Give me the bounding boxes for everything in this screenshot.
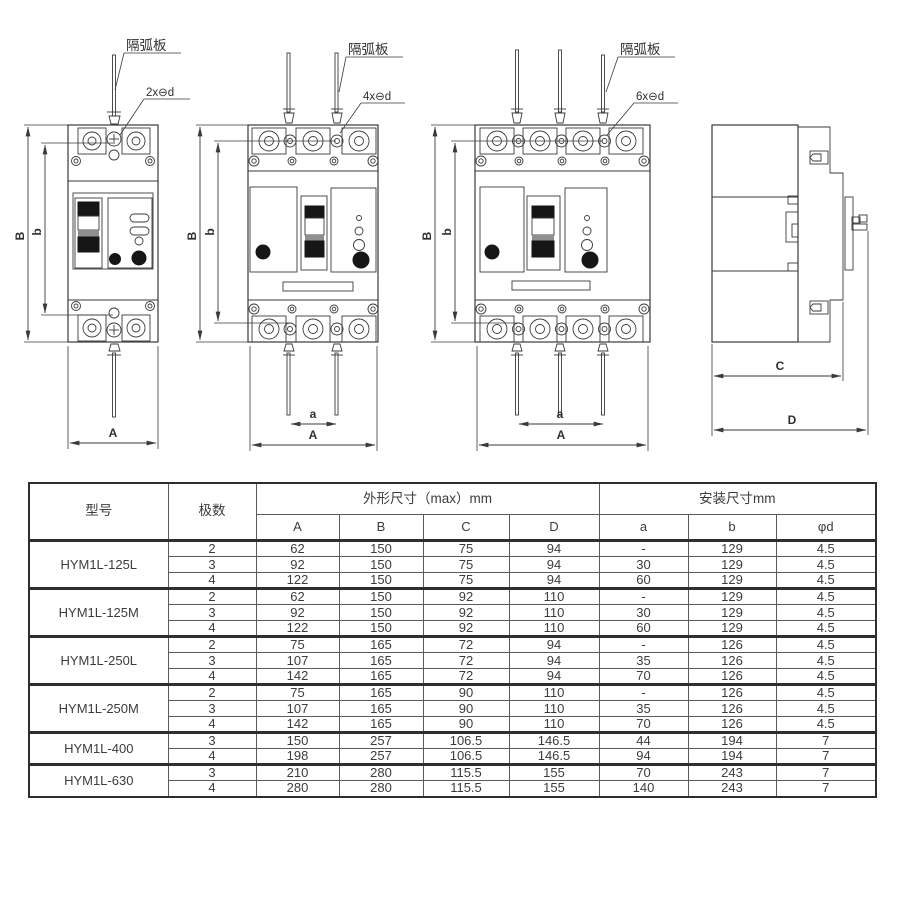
breaker-dimension-drawings: 隔弧板 2x⊖d B b A xyxy=(0,0,900,478)
model-cell: HYM1L-250L xyxy=(29,637,168,685)
model-cell: HYM1L-400 xyxy=(29,733,168,765)
cell: 194 xyxy=(688,749,776,765)
subheader-b: b xyxy=(688,515,776,541)
dimension-A: A xyxy=(477,346,648,451)
cell: 94 xyxy=(509,557,599,573)
cell: 243 xyxy=(688,765,776,781)
header-mount-dims: 安装尺寸mm xyxy=(599,483,876,515)
table-row: HYM1L-250L 2 75 165 72 94 - 126 4.5 xyxy=(29,637,876,653)
cell: 70 xyxy=(599,765,688,781)
cell: 2 xyxy=(168,685,256,701)
cell: 70 xyxy=(599,669,688,685)
toggle-handle xyxy=(532,206,554,257)
cell: 129 xyxy=(688,621,776,637)
terminal-lugs-top xyxy=(249,128,378,166)
datasheet-page: 隔弧板 2x⊖d B b A xyxy=(0,0,900,898)
cell: 165 xyxy=(339,637,423,653)
padlock-button xyxy=(485,245,499,259)
cell: 90 xyxy=(423,717,509,733)
subheader-A: A xyxy=(256,515,339,541)
cell: 4.5 xyxy=(776,573,876,589)
dimension-A: A xyxy=(68,346,158,449)
subheader-C: C xyxy=(423,515,509,541)
arc-plate-rods-bottom xyxy=(511,344,609,415)
mounting-plate xyxy=(845,197,853,270)
cell: 115.5 xyxy=(423,765,509,781)
cell: 4.5 xyxy=(776,653,876,669)
subheader-phi-d: φd xyxy=(776,515,876,541)
arc-plate-callout: 隔弧板 xyxy=(115,38,181,90)
cell: - xyxy=(599,637,688,653)
breaker-cover xyxy=(480,187,607,290)
cell: 35 xyxy=(599,653,688,669)
cell: 115.5 xyxy=(423,781,509,797)
terminal-lugs-top xyxy=(476,128,649,166)
cell: 94 xyxy=(509,653,599,669)
toggle-handle xyxy=(78,202,99,252)
dimension-b: b xyxy=(440,141,603,323)
cell: 243 xyxy=(688,781,776,797)
cell: 107 xyxy=(256,701,339,717)
dim-a-label: a xyxy=(557,407,564,421)
cell: 75 xyxy=(423,541,509,557)
table-row: HYM1L-125L 2 62 150 75 94 - 129 4.5 xyxy=(29,541,876,557)
trip-button xyxy=(132,251,146,265)
arc-plate-rods-top xyxy=(283,53,343,123)
header-model: 型号 xyxy=(29,483,168,541)
cell: - xyxy=(599,541,688,557)
nameplate-slot xyxy=(283,282,353,291)
cell: 7 xyxy=(776,733,876,749)
cell: 280 xyxy=(339,781,423,797)
cell: 4 xyxy=(168,749,256,765)
cell: 129 xyxy=(688,541,776,557)
dim-B-label: B xyxy=(185,231,199,240)
cell: 92 xyxy=(423,621,509,637)
cell: 146.5 xyxy=(509,733,599,749)
cell: 44 xyxy=(599,733,688,749)
cell: 4.5 xyxy=(776,621,876,637)
cell: 165 xyxy=(339,653,423,669)
cell: 142 xyxy=(256,717,339,733)
cell: 92 xyxy=(256,557,339,573)
cell: 92 xyxy=(423,605,509,621)
cell: 146.5 xyxy=(509,749,599,765)
cell: 150 xyxy=(339,573,423,589)
cell: 4 xyxy=(168,669,256,685)
test-button xyxy=(110,254,121,265)
cell: 4 xyxy=(168,717,256,733)
model-cell: HYM1L-125L xyxy=(29,541,168,589)
cell: 126 xyxy=(688,685,776,701)
cell: 75 xyxy=(423,573,509,589)
dim-A-label: A xyxy=(309,428,318,442)
cell: 126 xyxy=(688,637,776,653)
cell: 94 xyxy=(509,637,599,653)
arc-plate-callout: 隔弧板 xyxy=(339,42,403,92)
dim-a-label: a xyxy=(310,407,317,421)
trip-button xyxy=(582,252,598,268)
cell: 150 xyxy=(339,541,423,557)
dimension-b: b xyxy=(203,141,336,323)
cell: 198 xyxy=(256,749,339,765)
mounting-holes-callout: 4x⊖d xyxy=(340,91,405,133)
dim-D-label: D xyxy=(788,413,797,427)
cell: 4.5 xyxy=(776,685,876,701)
cell: 7 xyxy=(776,765,876,781)
cell: 110 xyxy=(509,717,599,733)
cell: 3 xyxy=(168,557,256,573)
cell: 7 xyxy=(776,749,876,765)
dim-b-label: b xyxy=(30,228,44,235)
dim-b-label: b xyxy=(440,228,454,235)
cell: - xyxy=(599,589,688,605)
cell: 3 xyxy=(168,765,256,781)
arc-plate-rods-top xyxy=(511,50,609,123)
dim-B-label: B xyxy=(13,231,27,240)
cell: 110 xyxy=(509,685,599,701)
arc-plate-rods-bottom xyxy=(283,344,343,415)
cell: 35 xyxy=(599,701,688,717)
cell: 129 xyxy=(688,557,776,573)
cell: 165 xyxy=(339,717,423,733)
holes-label: 4x⊖d xyxy=(363,91,391,103)
cell: 4.5 xyxy=(776,717,876,733)
model-cell: HYM1L-630 xyxy=(29,765,168,797)
cell: 4 xyxy=(168,573,256,589)
arc-plate-rod-top xyxy=(107,55,121,124)
cell: 122 xyxy=(256,573,339,589)
cell: 92 xyxy=(256,605,339,621)
cell: 129 xyxy=(688,605,776,621)
cell: 126 xyxy=(688,717,776,733)
cell: 72 xyxy=(423,669,509,685)
dim-b-label: b xyxy=(203,228,217,235)
cell: 72 xyxy=(423,653,509,669)
table-row: HYM1L-630 3 210 280 115.5 155 70 243 7 xyxy=(29,765,876,781)
dimension-C: C xyxy=(712,302,843,436)
rear-housing-outline xyxy=(798,127,843,342)
arc-plate-rod-bottom xyxy=(107,344,121,417)
cell: 4.5 xyxy=(776,557,876,573)
cell: 62 xyxy=(256,589,339,605)
header-outline-dims: 外形尺寸（max）mm xyxy=(256,483,599,515)
dimension-a: a xyxy=(291,407,336,424)
cell: 4 xyxy=(168,781,256,797)
cell: 75 xyxy=(256,685,339,701)
cell: 257 xyxy=(339,733,423,749)
cell: 110 xyxy=(509,589,599,605)
cell: 155 xyxy=(509,765,599,781)
breaker-cover xyxy=(73,193,153,269)
terminal-lugs-bottom xyxy=(72,302,155,342)
terminal-clip xyxy=(852,215,867,230)
cell: 110 xyxy=(509,701,599,717)
dim-C-label: C xyxy=(776,359,785,373)
cell: 30 xyxy=(599,557,688,573)
model-cell: HYM1L-125M xyxy=(29,589,168,637)
cell: 142 xyxy=(256,669,339,685)
cell: 280 xyxy=(256,781,339,797)
cell: 126 xyxy=(688,669,776,685)
breaker-cover xyxy=(250,187,376,291)
subheader-B: B xyxy=(339,515,423,541)
cell: 94 xyxy=(599,749,688,765)
dim-B-label: B xyxy=(420,231,434,240)
dim-A-label: A xyxy=(109,426,118,440)
cell: 75 xyxy=(256,637,339,653)
cell: 150 xyxy=(339,557,423,573)
cell: 150 xyxy=(339,605,423,621)
dimension-a: a xyxy=(519,407,603,424)
breaker-2pole-front-view: 隔弧板 2x⊖d B b A xyxy=(13,38,190,449)
arc-plate-label: 隔弧板 xyxy=(620,42,661,57)
cell: 4.5 xyxy=(776,589,876,605)
holes-label: 2x⊖d xyxy=(146,87,174,99)
cell: 72 xyxy=(423,637,509,653)
cell: 4.5 xyxy=(776,669,876,685)
toggle-handle xyxy=(305,206,324,257)
cell: 122 xyxy=(256,621,339,637)
cell: 94 xyxy=(509,541,599,557)
mounting-boss-bottom xyxy=(810,301,828,314)
dimension-A: A xyxy=(250,346,377,451)
cell: 107 xyxy=(256,653,339,669)
breaker-3pole-front-view: 隔弧板 4x⊖d B b a A xyxy=(185,42,405,451)
table-row: HYM1L-400 3 150 257 106.5 146.5 44 194 7 xyxy=(29,733,876,749)
cell: 126 xyxy=(688,701,776,717)
cell: 155 xyxy=(509,781,599,797)
cell: 2 xyxy=(168,589,256,605)
breaker-side-view: C D xyxy=(712,125,868,436)
cell: 165 xyxy=(339,685,423,701)
cell: 3 xyxy=(168,605,256,621)
cell: 210 xyxy=(256,765,339,781)
cell: 110 xyxy=(509,621,599,637)
cell: 4.5 xyxy=(776,541,876,557)
cell: 3 xyxy=(168,701,256,717)
cell: 30 xyxy=(599,605,688,621)
cell: 2 xyxy=(168,637,256,653)
cell: 150 xyxy=(256,733,339,749)
cell: 92 xyxy=(423,589,509,605)
cell: 62 xyxy=(256,541,339,557)
dimensions-table-wrap: 型号 极数 外形尺寸（max）mm 安装尺寸mm A B C D a b φd … xyxy=(28,482,877,798)
table-row: HYM1L-125M 2 62 150 92 110 - 129 4.5 xyxy=(29,589,876,605)
cell: 3 xyxy=(168,653,256,669)
arc-plate-label: 隔弧板 xyxy=(348,42,389,57)
cell: 110 xyxy=(509,605,599,621)
cell: 4.5 xyxy=(776,605,876,621)
cell: 150 xyxy=(339,589,423,605)
cell: 90 xyxy=(423,685,509,701)
cell: 94 xyxy=(509,669,599,685)
cell: 7 xyxy=(776,781,876,797)
phillips-screw-icon xyxy=(107,132,121,146)
table-row: HYM1L-250M 2 75 165 90 110 - 126 4.5 xyxy=(29,685,876,701)
cell: - xyxy=(599,685,688,701)
cell: 129 xyxy=(688,589,776,605)
cell: 280 xyxy=(339,765,423,781)
cell: 60 xyxy=(599,573,688,589)
trip-button xyxy=(353,252,369,268)
dim-A-label: A xyxy=(557,428,566,442)
cell: 165 xyxy=(339,701,423,717)
cell: 3 xyxy=(168,733,256,749)
cell: 150 xyxy=(339,621,423,637)
holes-label: 6x⊖d xyxy=(636,91,664,103)
arc-plate-callout: 隔弧板 xyxy=(606,42,675,92)
padlock-button xyxy=(256,245,270,259)
cell: 90 xyxy=(423,701,509,717)
cell: 257 xyxy=(339,749,423,765)
breaker-4pole-front-view: 隔弧板 6x⊖d B b a A xyxy=(420,42,678,451)
terminal-lugs-top xyxy=(72,128,155,166)
mounting-boss-top xyxy=(810,151,828,164)
cell: 94 xyxy=(509,573,599,589)
cell: 165 xyxy=(339,669,423,685)
cell: 140 xyxy=(599,781,688,797)
cell: 60 xyxy=(599,621,688,637)
cell: 106.5 xyxy=(423,749,509,765)
cell: 4.5 xyxy=(776,701,876,717)
arc-plate-label: 隔弧板 xyxy=(126,38,167,53)
dimension-b: b xyxy=(30,143,113,315)
cell: 194 xyxy=(688,733,776,749)
header-poles: 极数 xyxy=(168,483,256,541)
subheader-D: D xyxy=(509,515,599,541)
cell: 129 xyxy=(688,573,776,589)
cell: 106.5 xyxy=(423,733,509,749)
cell: 75 xyxy=(423,557,509,573)
cell: 70 xyxy=(599,717,688,733)
cell: 4 xyxy=(168,621,256,637)
cell: 4.5 xyxy=(776,637,876,653)
cell: 126 xyxy=(688,653,776,669)
subheader-a: a xyxy=(599,515,688,541)
model-cell: HYM1L-250M xyxy=(29,685,168,733)
cell: 2 xyxy=(168,541,256,557)
nameplate-slot xyxy=(512,281,590,290)
dimensions-table: 型号 极数 外形尺寸（max）mm 安装尺寸mm A B C D a b φd … xyxy=(28,482,877,798)
